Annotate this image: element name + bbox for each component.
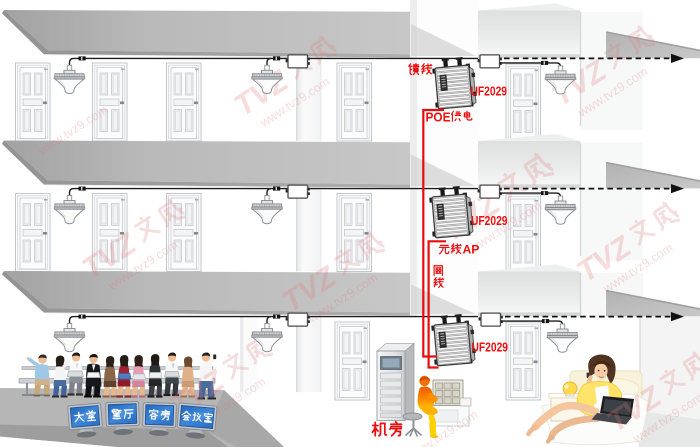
- svg-text:UF2029: UF2029: [472, 340, 509, 355]
- svg-text:POE: POE: [426, 111, 451, 125]
- svg-text:UF2029: UF2029: [471, 213, 508, 228]
- svg-text:UF2029: UF2029: [471, 84, 508, 99]
- svg-text:AP: AP: [463, 243, 480, 257]
